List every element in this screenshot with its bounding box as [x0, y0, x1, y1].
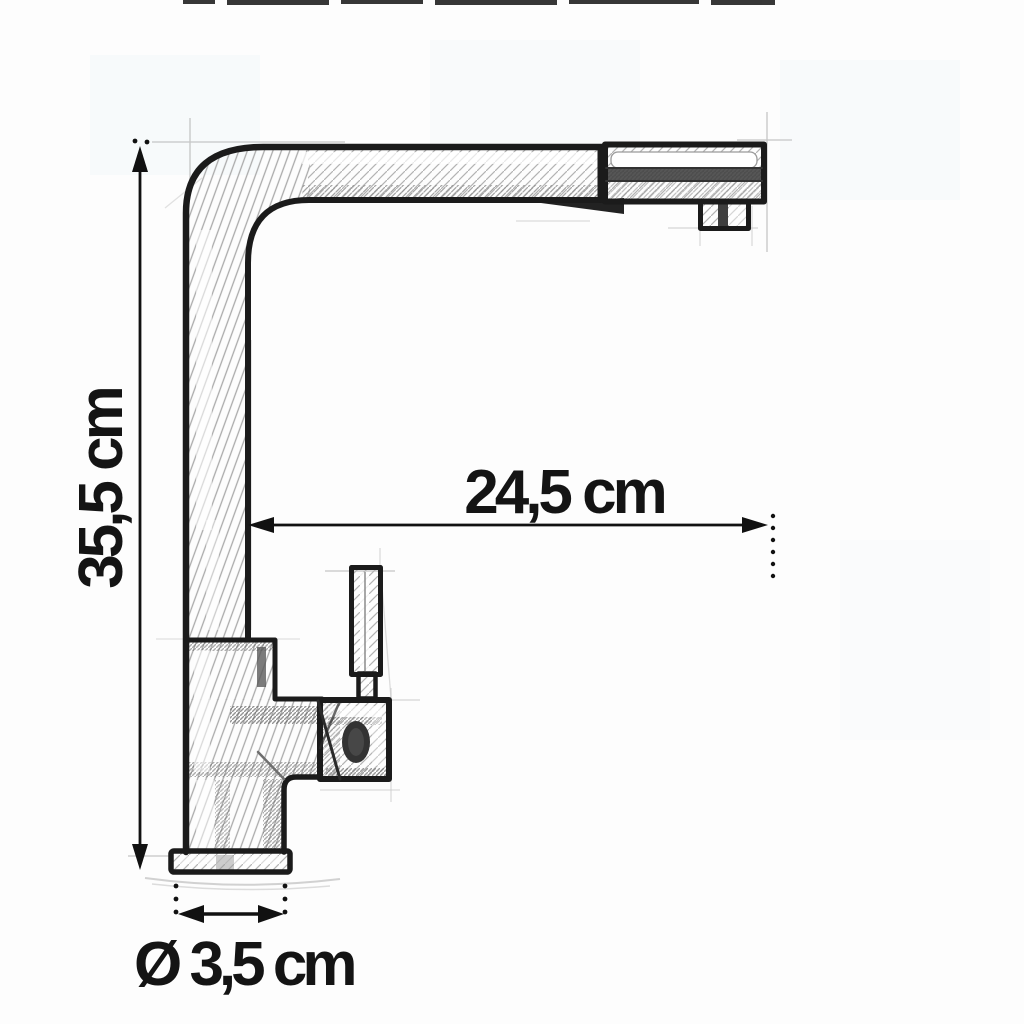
base-diameter-label: Ø 3,5 cm: [134, 934, 352, 996]
top-edge-cropped-marks: [183, 0, 775, 5]
arrow-right: [742, 517, 768, 533]
height-dimension-label: 35,5 cm: [71, 389, 133, 589]
faucet-inner-outline: [248, 200, 604, 638]
handle-neck-fill: [359, 674, 375, 698]
aerator-stripe: [718, 202, 728, 228]
reach-dimension-label: 24,5 cm: [464, 462, 664, 524]
arrow-right: [258, 905, 284, 923]
extension-dotted-line: [771, 514, 775, 578]
arrow-left: [178, 905, 204, 923]
spray-head-highlight: [611, 152, 757, 168]
arrow-left: [248, 517, 274, 533]
arrow-down: [132, 844, 148, 870]
valve-body-bottom-outline: [284, 777, 318, 852]
faucet-sketch-page: 35,5 cm 24,5 cm Ø 3,5 cm: [0, 0, 1024, 1024]
